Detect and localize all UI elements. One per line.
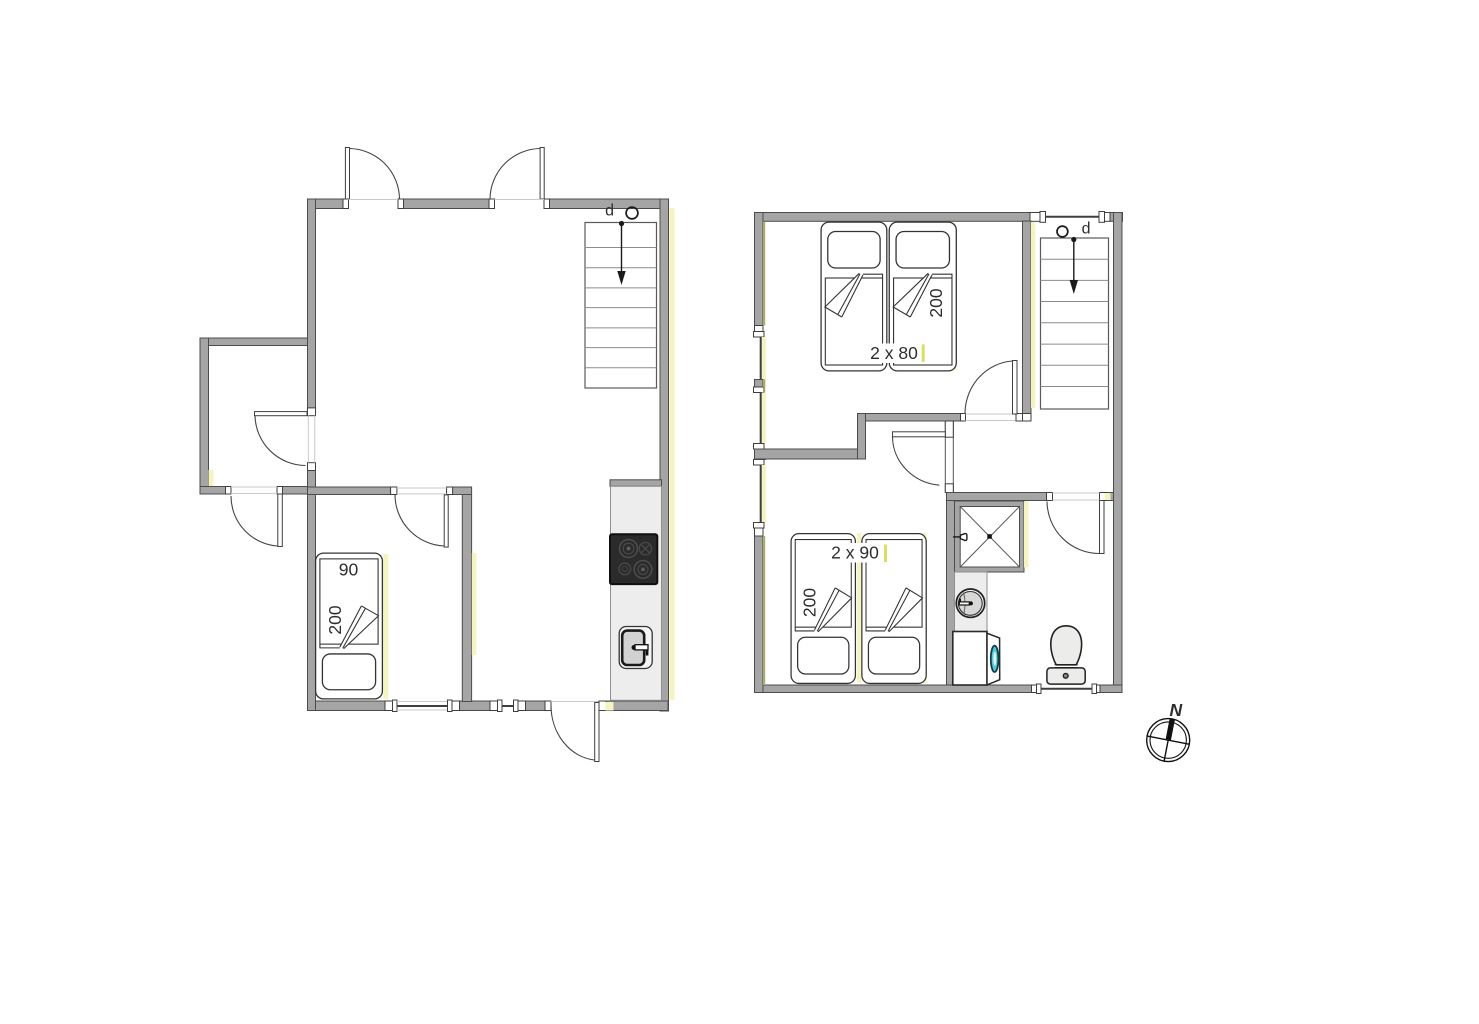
svg-text:N: N [1170,700,1183,720]
svg-text:p: p [1082,221,1091,238]
svg-text:2 x 90: 2 x 90 [831,543,879,563]
svg-text:2 x 80: 2 x 80 [870,343,918,363]
svg-text:p: p [605,203,614,220]
svg-text:200: 200 [325,605,345,634]
svg-text:200: 200 [926,288,946,317]
svg-text:200: 200 [800,588,820,617]
svg-text:90: 90 [339,560,359,580]
